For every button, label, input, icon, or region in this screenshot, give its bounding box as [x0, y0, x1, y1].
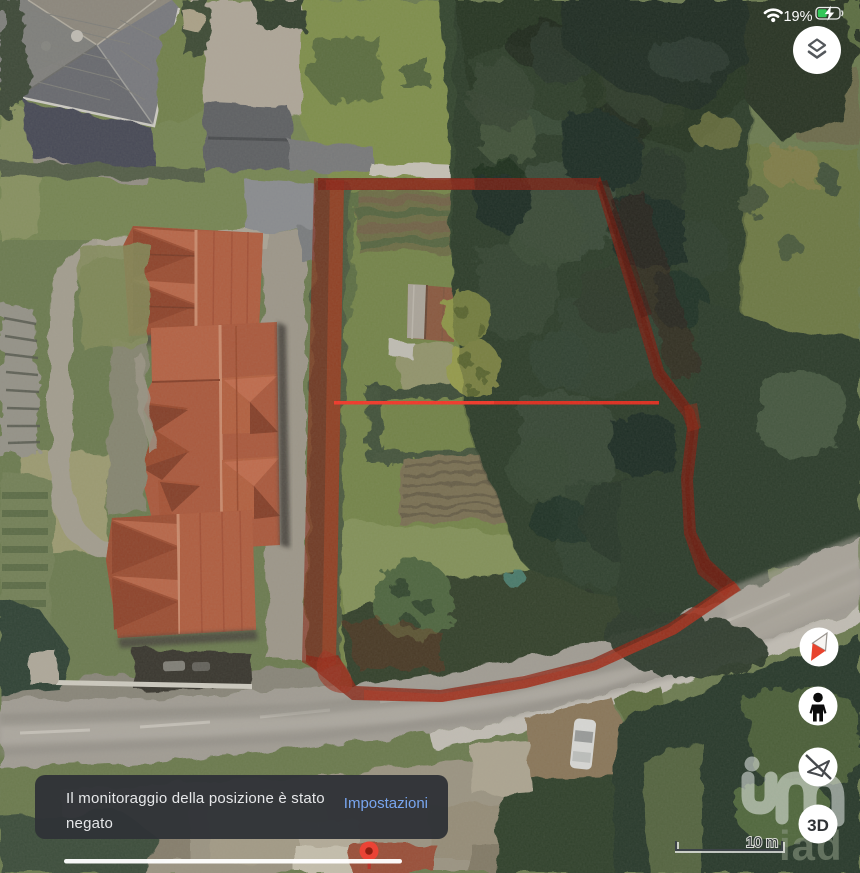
svg-text:10 m: 10 m [746, 835, 778, 851]
svg-text:3D: 3D [807, 816, 829, 835]
svg-text:19%: 19% [783, 9, 812, 25]
